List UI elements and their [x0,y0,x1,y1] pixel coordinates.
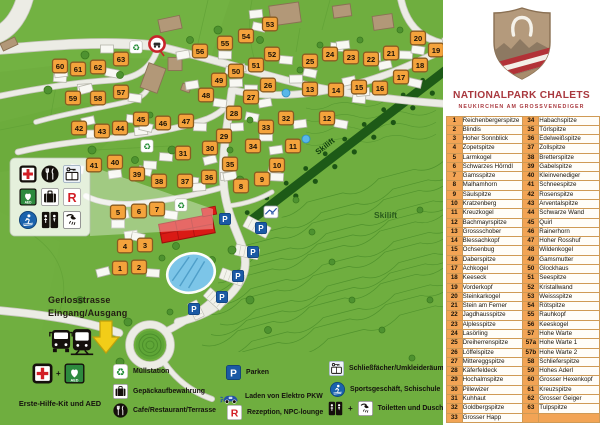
chalet-number-cell: 45 [523,218,539,227]
chalet-number-cell: 28 [447,367,463,376]
chalet-name-cell: Grosser Geiger [539,394,600,403]
plus-sign: + [348,404,353,413]
resort-map-screenshot: AEDR♻♻♻PPPPPPSkiliftSkilift1234567891011… [0,0,600,425]
chalet-number-cell: 27 [447,357,463,366]
chalet-number-cell: 33 [447,413,463,422]
chalet-number-cell: 59 [523,367,539,376]
chalet-row: 28Käferfeldeck59Hohes Aderl [447,367,600,376]
legend-item-parking: P Parken [226,365,269,380]
svg-text:AED: AED [25,201,32,205]
svg-text:57: 57 [117,88,125,97]
legend-item-waste: ♻ Müllstation [113,364,169,379]
chalet-number-cell: 10 [447,200,463,209]
chalet-marker-9: 9 [255,172,270,186]
chalet-name-cell: Zollspitze [539,144,600,153]
svg-text:47: 47 [182,117,190,126]
chalet-name-cell: Gamsspitze [462,172,523,181]
recycle-icon: ♻ [175,199,187,211]
shower-icon [358,401,373,416]
chalet-row: 9Säulspitze42Rosenspitze [447,190,600,199]
chalet-row: 24Lasörling57Hohe Warte [447,329,600,338]
chalet-row: 5Larmkogel38Bretterspitze [447,153,600,162]
chalet-row: 18Keeseck51Seespitze [447,274,600,283]
chalet-number-cell: 37 [523,144,539,153]
chalet-number-cell: 9 [447,190,463,199]
chalet-name-cell: Jagdhausspitze [462,311,523,320]
chalet-name-cell: Mittereggspitze [462,357,523,366]
logo-shield [486,5,558,83]
chalet-marker-24: 24 [323,47,338,61]
chalet-name-cell: Stein am Ferner [462,302,523,311]
svg-text:51: 51 [252,61,261,70]
chalet-marker-51: 51 [249,58,264,72]
chalet-marker-48: 48 [199,88,214,102]
chalet-number-cell: 42 [523,190,539,199]
parking-icon: P [247,246,258,257]
building [146,269,160,278]
lockers-icon [63,165,80,182]
chalet-marker-49: 49 [212,73,227,87]
recycle-icon: ♻ [141,140,153,152]
street-name: Gerlosstrasse [48,294,128,307]
lockers-icon [329,361,344,376]
building [289,75,302,83]
svg-text:34: 34 [249,142,258,151]
chalet-name-cell: Hoher Sonnblick [462,135,523,144]
chalet-row: 30Pillewizer61Kreuzspitze [447,385,600,394]
garden-ring [136,331,165,360]
svg-text:20: 20 [414,34,422,43]
chalet-number-cell: 57 [523,329,539,338]
chalet-marker-2: 2 [132,260,147,274]
svg-text:53: 53 [266,20,274,29]
brand-subtitle: NEUKIRCHEN AM GROSSVENEDIGER [443,104,600,110]
chalet-name-cell: Hohe Warte 2 [539,348,600,357]
svg-text:59: 59 [69,94,77,103]
building [332,4,351,18]
chalet-row: 13Grossschober46Rainerhorn [447,227,600,236]
building [229,79,242,87]
chalet-name-cell: Hoher Rosshuf [539,237,600,246]
parking-icon: P [219,213,230,224]
chalet-row: 29Hochalmspitze60Grosser Hexenkopf [447,376,600,385]
chalet-table-body: 1Reichenbergerspitze34Habachspitze2Blind… [447,116,600,422]
chalet-name-cell: Daberspitze [462,255,523,264]
chalet-row: 23Alplesspitze56Keeskogel [447,320,600,329]
chalet-number-cell: 5 [447,153,463,162]
ski-school-icon [19,211,36,228]
svg-text:45: 45 [137,115,146,124]
chalet-marker-61: 61 [71,62,86,76]
chalet-marker-21: 21 [384,46,399,60]
reception-icon: R [227,405,242,420]
svg-text:28: 28 [230,109,238,118]
restaurant-icon [41,165,58,182]
svg-text:29: 29 [220,132,228,141]
chalet-name-cell: Weissspitze [539,292,600,301]
chalet-number-cell: 43 [523,200,539,209]
chalet-number-cell: 47 [523,237,539,246]
chalet-number-cell: 60 [523,376,539,385]
chalet-marker-53: 53 [263,17,278,31]
svg-text:61: 61 [74,65,83,74]
map: AEDR♻♻♻PPPPPPSkiliftSkilift1234567891011… [0,0,443,425]
legend-item-reception: R Rezeption, NPC-lounge [227,405,323,420]
chalet-marker-44: 44 [113,121,128,135]
building [249,9,263,18]
chalet-number-cell: 24 [447,329,463,338]
chalet-number-cell: 3 [447,135,463,144]
pond [282,89,290,97]
chalet-marker-54: 54 [239,29,254,43]
building [101,45,114,53]
brand-title: NATIONALPARK CHALETS [443,90,600,101]
chalet-name-cell: Keeskogel [539,320,600,329]
chalet-name-cell: Pillewizer [462,385,523,394]
chalet-name-cell: Vorderkopf [462,283,523,292]
chalet-number-cell: 57a [523,339,539,348]
chalet-marker-29: 29 [217,129,232,143]
chalet-number-cell: 31 [447,394,463,403]
chalet-number-cell: 56 [523,320,539,329]
svg-text:24: 24 [326,50,335,59]
svg-text:55: 55 [221,39,230,48]
chalet-number-cell: 18 [447,274,463,283]
chalet-marker-14: 14 [329,83,344,97]
svg-text:P: P [191,305,197,314]
building [218,51,231,59]
chalet-name-cell: Blindis [462,125,523,134]
svg-text:31: 31 [179,149,188,158]
svg-text:2: 2 [137,263,141,272]
legend-item-luggage: Gepäckaufbewahrung [113,384,205,399]
chalet-name-cell: Wildenkogel [539,246,600,255]
chalet-name-cell: Hohe Warte 1 [539,339,600,348]
chalet-marker-22: 22 [364,52,379,66]
chalet-name-cell: Quirl [539,218,600,227]
chalet-row: 15Ochsenbug48Wildenkogel [447,246,600,255]
svg-text:25: 25 [306,57,315,66]
chalet-number-cell: 21 [447,302,463,311]
chalet-marker-50: 50 [229,64,244,78]
building [213,98,227,108]
chalet-marker-10: 10 [270,158,285,172]
chalet-number-cell: 4 [447,144,463,153]
svg-text:15: 15 [355,83,364,92]
recycle-icon: ♻ [113,364,128,379]
chalet-name-cell: Gabelspitze [539,162,600,171]
chalet-number-cell: 22 [447,311,463,320]
chalet-number-cell: 6 [447,162,463,171]
chalet-name-cell: Schneespitze [539,181,600,190]
svg-text:P: P [250,248,256,257]
legend-item-toilets: + Toiletten und Duschen [328,401,451,416]
chalet-name-cell: Malhamhorn [462,181,523,190]
chalet-number-cell: 61 [523,385,539,394]
chalet-number-cell: 14 [447,237,463,246]
chalet-name-cell: Rainerhorn [539,227,600,236]
chalet-name-cell: Blessachkopf [462,237,523,246]
parking-icon: P [255,222,266,233]
svg-text:56: 56 [196,47,204,56]
chalet-number-cell: 40 [523,172,539,181]
chalet-row: 21Stein am Ferner54Rötspitze [447,302,600,311]
svg-text:8: 8 [239,182,243,191]
chalet-marker-23: 23 [344,50,359,64]
chalet-number-cell: 55 [523,311,539,320]
chalet-name-cell: Kleinvenediger [539,172,600,181]
logo [443,5,600,83]
chalet-marker-52: 52 [265,47,280,61]
chalet-marker-39: 39 [130,167,145,181]
entrance-exit-label: Eingang/Ausgang [48,307,128,320]
svg-text:23: 23 [347,53,355,62]
first-aid-icon [19,165,36,182]
chalet-row: 14Blessachkopf47Hoher Rosshuf [447,237,600,246]
building [230,123,243,132]
chalet-number-cell: 50 [523,265,539,274]
chalet-row: 17Achkogel50Glockhaus [447,265,600,274]
svg-text:44: 44 [116,124,125,133]
legend-item-lockers: Schließfächer/Umkleideräume [329,361,447,376]
chalet-number-cell: 12 [447,218,463,227]
chalet-marker-62: 62 [91,60,106,74]
chalet-marker-58: 58 [91,91,106,105]
info-panel: NATIONALPARK CHALETS NEUKIRCHEN AM GROSS… [443,0,600,425]
svg-text:17: 17 [397,73,405,82]
chalet-marker-5: 5 [111,205,126,219]
svg-text:43: 43 [98,127,106,136]
building [399,51,412,59]
chalet-name-cell: Alplesspitze [462,320,523,329]
chalet-row: 25Dreiherrenspitze57aHohe Warte 1 [447,339,600,348]
chalet-marker-60: 60 [53,59,68,73]
chalet-name-cell: Glockhaus [539,265,600,274]
svg-text:3: 3 [143,241,147,250]
chalet-number-cell: 16 [447,255,463,264]
svg-text:7: 7 [155,205,159,214]
chalet-marker-27: 27 [244,90,259,104]
chalet-name-cell [539,413,600,422]
chalet-name-cell: Säulspitze [462,190,523,199]
chalet-number-cell: 17 [447,265,463,274]
chalet-row: 12Bachmayrspitze45Quirl [447,218,600,227]
chalet-marker-37: 37 [178,174,193,188]
building [193,123,206,131]
entrance-label: Gerlosstrasse Eingang/Ausgang [48,294,128,319]
chalet-name-cell: Dreiherrenspitze [462,339,523,348]
recycle-icon: ♻ [130,41,142,53]
chalet-marker-59: 59 [66,91,81,105]
chalet-row: 3Hoher Sonnblick36Edelweißspitze [447,135,600,144]
svg-text:50: 50 [232,67,240,76]
chalet-name-cell: Zopetspitze [462,144,523,153]
chalet-row: 32Goldbergspitze63Tulpspitze [447,404,600,413]
chalet-number-cell: 63 [523,404,539,413]
chalet-marker-55: 55 [218,36,233,50]
chalet-marker-26: 26 [261,78,276,92]
chalet-number-cell: 20 [447,292,463,301]
legend-item-ev: Laden von Elektro PKW [219,386,323,407]
chalet-number-cell: 25 [447,339,463,348]
svg-text:9: 9 [260,175,264,184]
skilift-hill-label: Skilift [374,210,397,220]
chalet-number-cell: 46 [523,227,539,236]
svg-text:30: 30 [206,144,214,153]
chalet-row: 26Löffelspitze57bHohe Warte 2 [447,348,600,357]
chalet-row: 11Kreuzkogel44Schwarze Wand [447,209,600,218]
svg-text:63: 63 [117,55,125,64]
chalet-name-cell: Gamsmutter [539,255,600,264]
chalet-marker-56: 56 [193,44,208,58]
chalet-name-cell: Hohes Aderl [539,367,600,376]
luggage-icon [113,384,128,399]
building [185,80,199,90]
chalet-marker-36: 36 [202,170,217,184]
svg-text:33: 33 [262,123,270,132]
chalet-number-cell: 2 [447,125,463,134]
chalet-name-cell: Grosser Hexenkopf [539,376,600,385]
chalet-number-cell [523,413,539,422]
svg-text:19: 19 [432,46,440,55]
chalet-marker-16: 16 [373,81,388,95]
chalet-marker-19: 19 [429,43,444,57]
chalet-name-cell: Keeseck [462,274,523,283]
svg-text:41: 41 [90,161,99,170]
chalet-number-cell: 48 [523,246,539,255]
svg-text:13: 13 [306,85,314,94]
chalet-number-cell: 32 [447,404,463,413]
chalet-number-cell: 34 [523,116,539,125]
svg-text:36: 36 [205,173,213,182]
wc-icon [328,401,343,416]
ev-charging-icon [219,386,240,407]
restaurant-icon [113,403,128,418]
svg-text:10: 10 [273,161,281,170]
chalet-name-cell: Ochsenbug [462,246,523,255]
svg-text:R: R [67,191,76,205]
chalet-marker-12: 12 [320,111,335,125]
chalet-marker-33: 33 [259,120,274,134]
svg-text:♻: ♻ [116,367,125,378]
chalet-marker-1: 1 [113,261,128,275]
building [411,45,425,55]
chalet-number-cell: 15 [447,246,463,255]
chalet-number-cell: 41 [523,181,539,190]
svg-text:49: 49 [215,76,223,85]
svg-text:39: 39 [133,170,141,179]
svg-text:35: 35 [226,160,235,169]
svg-text:58: 58 [94,94,102,103]
aed-icon: AED [19,188,36,205]
chalet-number-cell: 62 [523,394,539,403]
chalet-name-cell: Schlieferspitze [539,357,600,366]
chalet-marker-11: 11 [286,139,301,153]
chalet-marker-63: 63 [114,52,129,66]
chalet-marker-18: 18 [413,58,428,72]
svg-text:40: 40 [111,158,119,167]
chalet-marker-7: 7 [150,202,165,216]
svg-text:♻: ♻ [177,201,185,211]
chalet-marker-20: 20 [411,31,426,45]
chalet-number-cell: 44 [523,209,539,218]
chalet-row: 27Mittereggspitze58Schlieferspitze [447,357,600,366]
chalet-name-cell: Bachmayrspitze [462,218,523,227]
chalet-row: 7Gamsspitze40Kleinvenediger [447,172,600,181]
svg-text:62: 62 [94,63,102,72]
svg-text:♻: ♻ [143,142,151,152]
building [128,93,142,103]
aed-icon: AED [64,363,85,384]
chalet-row: 31Kuhhaut62Grosser Geiger [447,394,600,403]
chalet-marker-32: 32 [279,111,294,125]
svg-text:22: 22 [367,55,375,64]
chalet-name-cell: Steinkarkogel [462,292,523,301]
building [270,173,283,182]
chalet-number-cell: 51 [523,274,539,283]
svg-text:54: 54 [242,32,251,41]
svg-text:52: 52 [268,50,276,59]
chalet-row: 8Malhamhorn41Schneespitze [447,181,600,190]
chalet-name-cell: Kristallwand [539,283,600,292]
pond [302,135,310,143]
chalet-name-cell: Kreuzspitze [539,385,600,394]
chalet-row: 33Grosser Happ [447,413,600,422]
chalet-name-cell: Grosser Happ [462,413,523,422]
building [293,119,307,129]
chalet-number-cell: 30 [447,385,463,394]
chalet-name-cell: Schwarzes Hörndl [462,162,523,171]
first-aid-icon [32,363,53,384]
chalet-name-cell: Larmkogel [462,153,523,162]
chalet-number-cell: 29 [447,376,463,385]
svg-text:P: P [230,368,237,379]
svg-text:48: 48 [202,91,210,100]
chalet-number-cell: 54 [523,302,539,311]
chalet-number-cell: 49 [523,255,539,264]
chalet-name-cell: Bretterspitze [539,153,600,162]
chalet-marker-6: 6 [132,204,147,218]
chalet-number-cell: 26 [447,348,463,357]
building [372,14,394,31]
chalet-number-cell: 23 [447,320,463,329]
chalet-number-cell: 7 [447,172,463,181]
svg-text:♻: ♻ [132,43,140,53]
chalet-marker-28: 28 [227,106,242,120]
ski-school-icon [330,382,345,397]
svg-text:AED: AED [70,378,78,382]
chalet-name-cell: Habachspitze [539,116,600,125]
chalet-marker-30: 30 [203,141,218,155]
chalet-number-cell: 52 [523,283,539,292]
svg-text:P: P [258,224,264,233]
svg-text:37: 37 [181,177,189,186]
chalet-name-cell: Rötspitze [539,302,600,311]
chalet-number-cell: 57b [523,348,539,357]
chalet-marker-35: 35 [223,157,238,171]
chalet-name-cell: Schwarze Wand [539,209,600,218]
building [143,161,156,170]
chalet-name-cell: Rosenspitze [539,190,600,199]
svg-text:26: 26 [264,81,272,90]
chalet-row: 4Zopetspitze37Zollspitze [447,144,600,153]
chalet-name-cell: Reichenbergerspitze [462,116,523,125]
chalet-marker-17: 17 [394,70,409,84]
chalet-number-cell: 11 [447,209,463,218]
chalet-row: 20Steinkarkogel53Weissspitze [447,292,600,301]
svg-text:P: P [222,215,228,224]
chalet-marker-45: 45 [134,112,149,126]
